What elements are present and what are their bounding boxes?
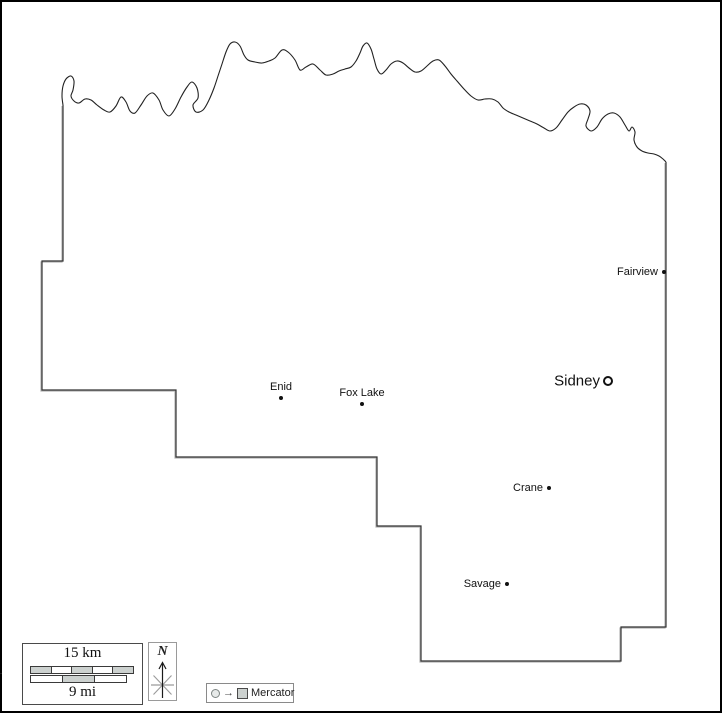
scale-bar-km	[30, 666, 134, 674]
compass-box: N	[148, 642, 177, 701]
city-label-crane: Crane	[513, 482, 543, 494]
city-marker-fox-lake	[360, 402, 364, 406]
projection-legend-box: → Mercator	[206, 683, 294, 703]
scale-segment	[112, 667, 133, 673]
scale-bar-mi	[30, 675, 127, 683]
flat-map-icon	[237, 688, 248, 699]
north-arrow-icon	[149, 657, 176, 699]
sphere-icon	[211, 689, 220, 698]
projection-name: Mercator	[251, 687, 294, 699]
scale-segment	[92, 667, 113, 673]
city-marker-fairview	[662, 270, 666, 274]
scale-segment	[31, 676, 62, 682]
scale-mi-label: 9 mi	[23, 684, 142, 701]
copyright-text: © d-maps.com	[0, 643, 3, 707]
scale-segment	[71, 667, 92, 673]
city-label-fox-lake: Fox Lake	[339, 387, 384, 399]
city-label-fairview: Fairview	[617, 266, 658, 278]
city-label-savage: Savage	[464, 578, 501, 590]
scale-bar-box: 15 km 9 mi	[22, 643, 143, 705]
city-marker-sidney	[603, 376, 613, 386]
city-label-sidney: Sidney	[554, 373, 600, 390]
city-marker-crane	[547, 486, 551, 490]
scale-segment	[62, 676, 94, 682]
map-canvas: FairviewSidneyEnidFox LakeCraneSavage 15…	[0, 0, 722, 713]
county-map	[0, 0, 722, 713]
city-marker-savage	[505, 582, 509, 586]
river-boundary	[62, 42, 666, 162]
scale-km-label: 15 km	[23, 645, 142, 662]
scale-segment	[51, 667, 72, 673]
scale-segment	[31, 667, 51, 673]
city-label-enid: Enid	[270, 381, 292, 393]
arrow-right-icon: →	[223, 688, 234, 699]
city-marker-enid	[279, 396, 283, 400]
scale-segment	[94, 676, 126, 682]
